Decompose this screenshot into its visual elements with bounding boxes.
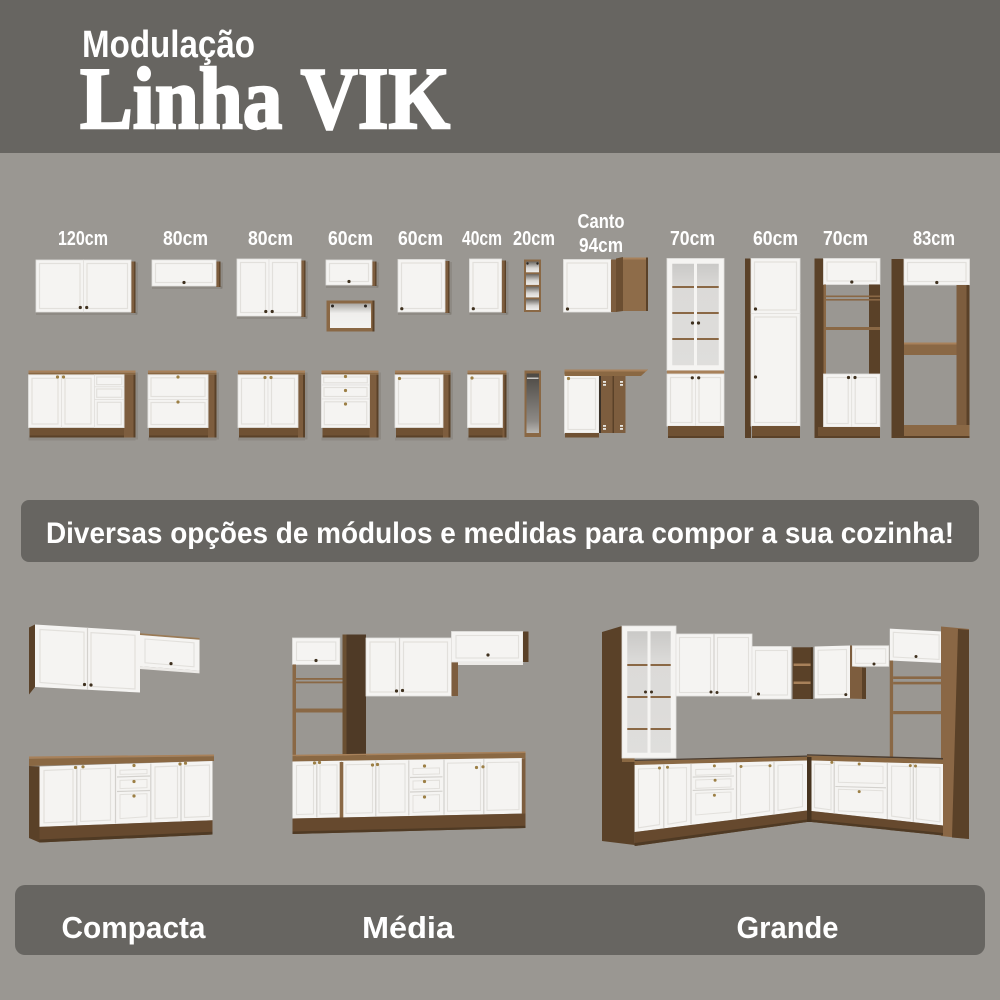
svg-text:Diversas opções de módulos e m: Diversas opções de módulos e medidas par… [46, 517, 954, 550]
svg-text:60cm: 60cm [753, 228, 798, 250]
svg-text:70cm: 70cm [670, 228, 715, 250]
svg-text:120cm: 120cm [58, 228, 108, 250]
svg-text:60cm: 60cm [398, 228, 443, 250]
svg-text:Média: Média [362, 910, 455, 945]
svg-text:Grande: Grande [737, 910, 839, 945]
svg-text:Linha VIK: Linha VIK [80, 51, 450, 148]
svg-text:83cm: 83cm [913, 228, 955, 250]
svg-text:80cm: 80cm [163, 228, 208, 250]
svg-text:80cm: 80cm [248, 228, 293, 250]
svg-text:94cm: 94cm [579, 235, 623, 257]
svg-text:40cm: 40cm [462, 228, 502, 250]
svg-text:70cm: 70cm [823, 228, 868, 250]
svg-text:20cm: 20cm [513, 228, 555, 250]
svg-text:Canto: Canto [578, 211, 625, 233]
svg-text:Compacta: Compacta [62, 910, 207, 945]
svg-text:60cm: 60cm [328, 228, 373, 250]
